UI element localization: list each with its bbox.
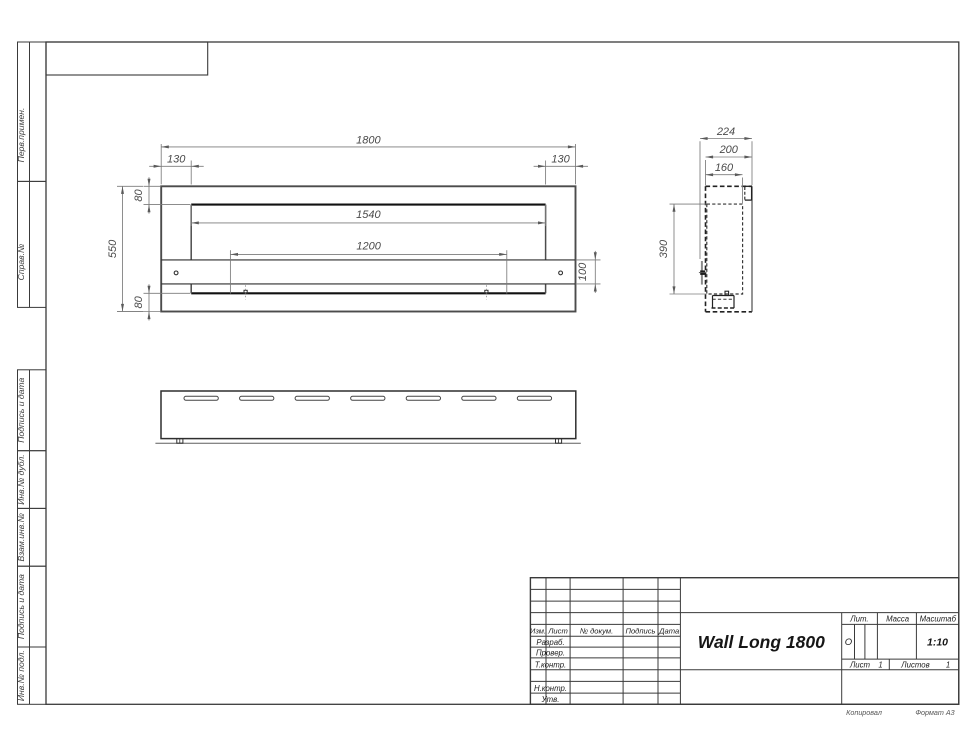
svg-text:Т.контр.: Т.контр. — [535, 660, 566, 669]
svg-text:Изм.: Изм. — [530, 626, 546, 635]
svg-text:Утв.: Утв. — [541, 695, 560, 704]
svg-text:1: 1 — [946, 661, 950, 670]
svg-text:Н.контр.: Н.контр. — [534, 684, 567, 693]
svg-text:Масштаб: Масштаб — [920, 615, 957, 624]
svg-text:Лит.: Лит. — [849, 615, 868, 624]
svg-text:№ докум.: № докум. — [580, 626, 613, 635]
svg-text:Масса: Масса — [886, 615, 910, 624]
svg-text:Справ.№: Справ.№ — [16, 244, 26, 281]
svg-text:Формат А3: Формат А3 — [915, 708, 954, 717]
svg-text:Дата: Дата — [658, 626, 679, 635]
svg-text:80: 80 — [133, 188, 145, 201]
svg-text:Провер.: Провер. — [536, 649, 565, 658]
svg-text:Перв.примен.: Перв.примен. — [16, 108, 26, 163]
svg-text:1540: 1540 — [356, 209, 381, 221]
svg-text:Подпись и дата: Подпись и дата — [16, 378, 26, 443]
svg-text:100: 100 — [577, 262, 589, 281]
svg-text:1200: 1200 — [356, 240, 381, 252]
svg-text:80: 80 — [133, 295, 145, 308]
svg-text:Подпись и дата: Подпись и дата — [16, 574, 26, 639]
svg-text:200: 200 — [719, 144, 739, 156]
svg-text:1:10: 1:10 — [927, 637, 948, 649]
svg-text:224: 224 — [716, 126, 735, 138]
svg-text:390: 390 — [658, 239, 670, 258]
svg-text:Листов: Листов — [900, 661, 929, 670]
svg-text:О: О — [845, 637, 853, 648]
svg-text:Разраб.: Разраб. — [536, 638, 564, 647]
svg-text:Инв.№ дубл.: Инв.№ дубл. — [16, 454, 26, 504]
svg-text:130: 130 — [551, 154, 570, 166]
svg-text:Лист: Лист — [849, 661, 871, 670]
svg-text:Подпись: Подпись — [625, 626, 655, 635]
svg-text:Копировал: Копировал — [846, 708, 882, 717]
svg-text:Инв.№ подл.: Инв.№ подл. — [16, 650, 26, 701]
svg-text:160: 160 — [715, 162, 734, 174]
svg-text:1800: 1800 — [356, 134, 381, 146]
svg-text:Лист: Лист — [547, 626, 568, 635]
svg-text:1: 1 — [878, 661, 882, 670]
svg-text:Взам.инв.№: Взам.инв.№ — [16, 513, 26, 561]
svg-text:130: 130 — [167, 154, 186, 166]
svg-text:Wall Long 1800: Wall Long 1800 — [698, 632, 825, 652]
svg-text:550: 550 — [107, 239, 119, 258]
